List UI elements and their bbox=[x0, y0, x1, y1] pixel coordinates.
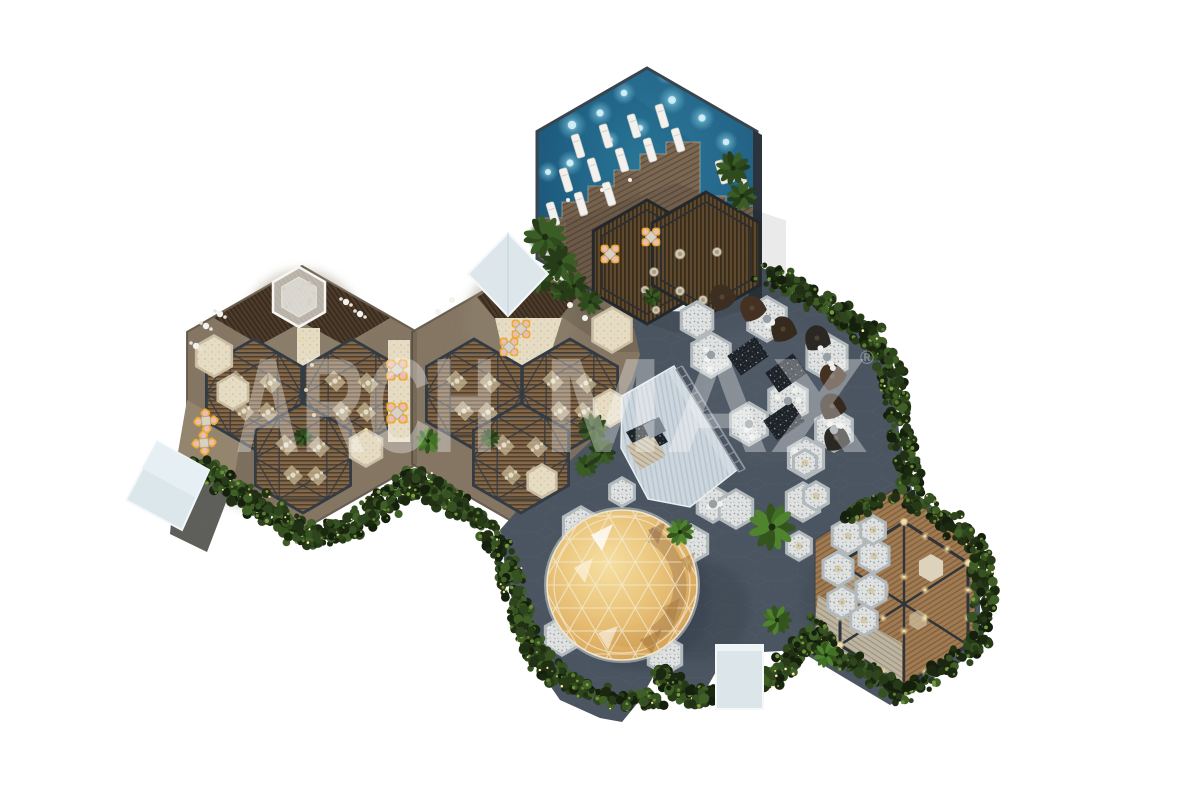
svg-text:ARCH: ARCH bbox=[235, 330, 497, 481]
svg-text:MAX: MAX bbox=[542, 330, 868, 481]
svg-text:®: ® bbox=[860, 348, 874, 369]
